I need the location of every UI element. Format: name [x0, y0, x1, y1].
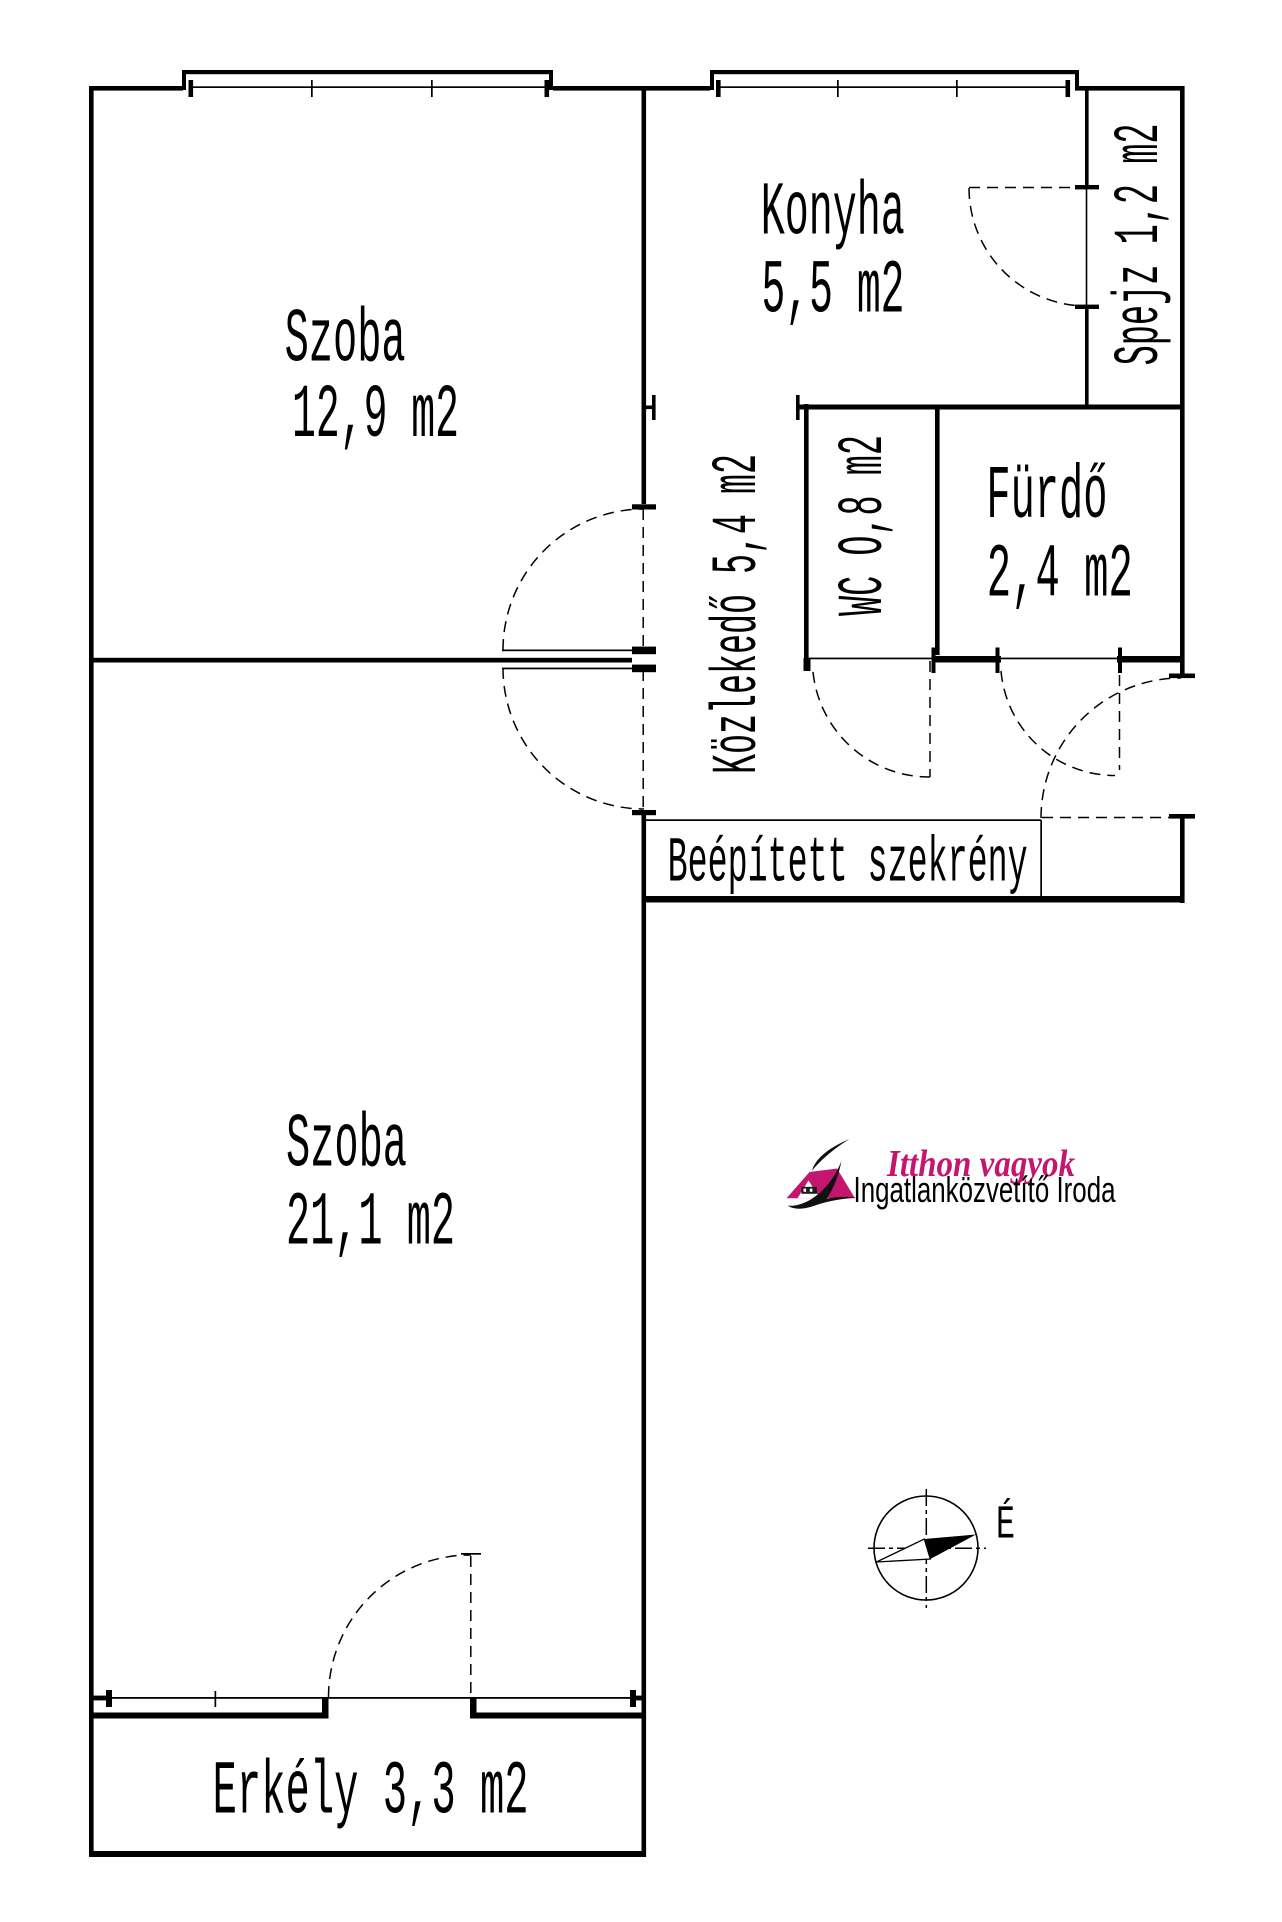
svg-text:Fürdő: Fürdő: [986, 454, 1107, 540]
svg-text:É: É: [996, 1499, 1015, 1553]
svg-text:Konyha: Konyha: [761, 171, 905, 257]
svg-text:21,1 m2: 21,1 m2: [286, 1181, 455, 1267]
svg-text:Szoba: Szoba: [286, 1103, 407, 1189]
svg-text:2,4 m2: 2,4 m2: [987, 532, 1133, 618]
svg-text:5,5 m2: 5,5 m2: [762, 249, 905, 335]
svg-text:Szoba: Szoba: [285, 297, 406, 383]
svg-text:Beépített szekrény: Beépített szekrény: [668, 828, 1028, 901]
svg-text:Ingatlanközvetítő Iroda: Ingatlanközvetítő Iroda: [854, 1169, 1117, 1210]
svg-text:Spejz 1,2 m2: Spejz 1,2 m2: [1104, 123, 1177, 365]
svg-text:WC O,8 m2: WC O,8 m2: [828, 435, 901, 616]
svg-text:Közlekedő 5,4 m2: Közlekedő 5,4 m2: [702, 454, 775, 774]
svg-text:12,9 m2: 12,9 m2: [292, 373, 459, 459]
svg-text:Erkély 3,3 m2: Erkély 3,3 m2: [213, 1750, 529, 1836]
